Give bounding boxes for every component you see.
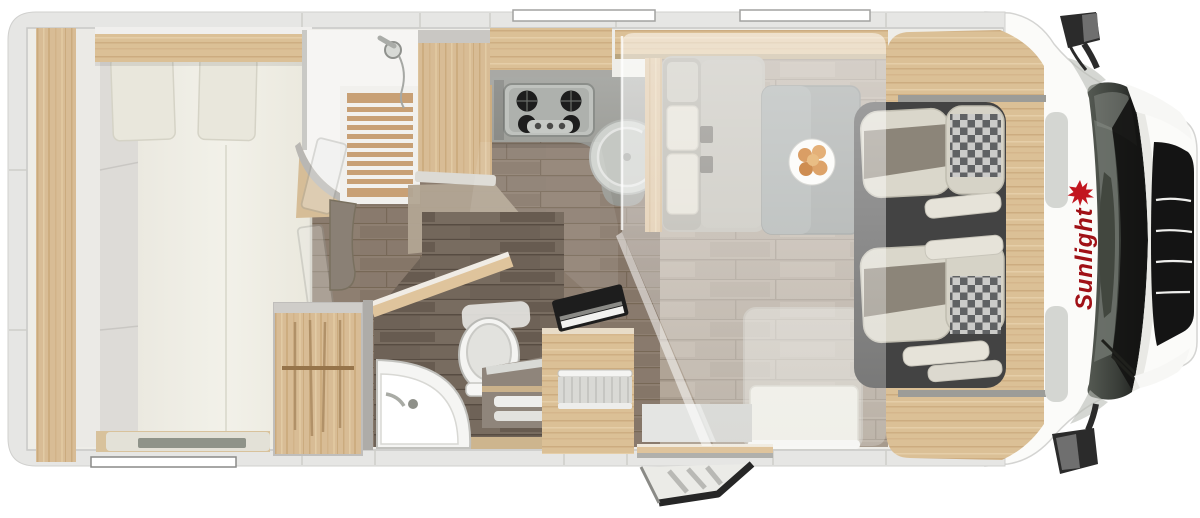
svg-text:Sunlight: Sunlight [1071, 207, 1098, 310]
